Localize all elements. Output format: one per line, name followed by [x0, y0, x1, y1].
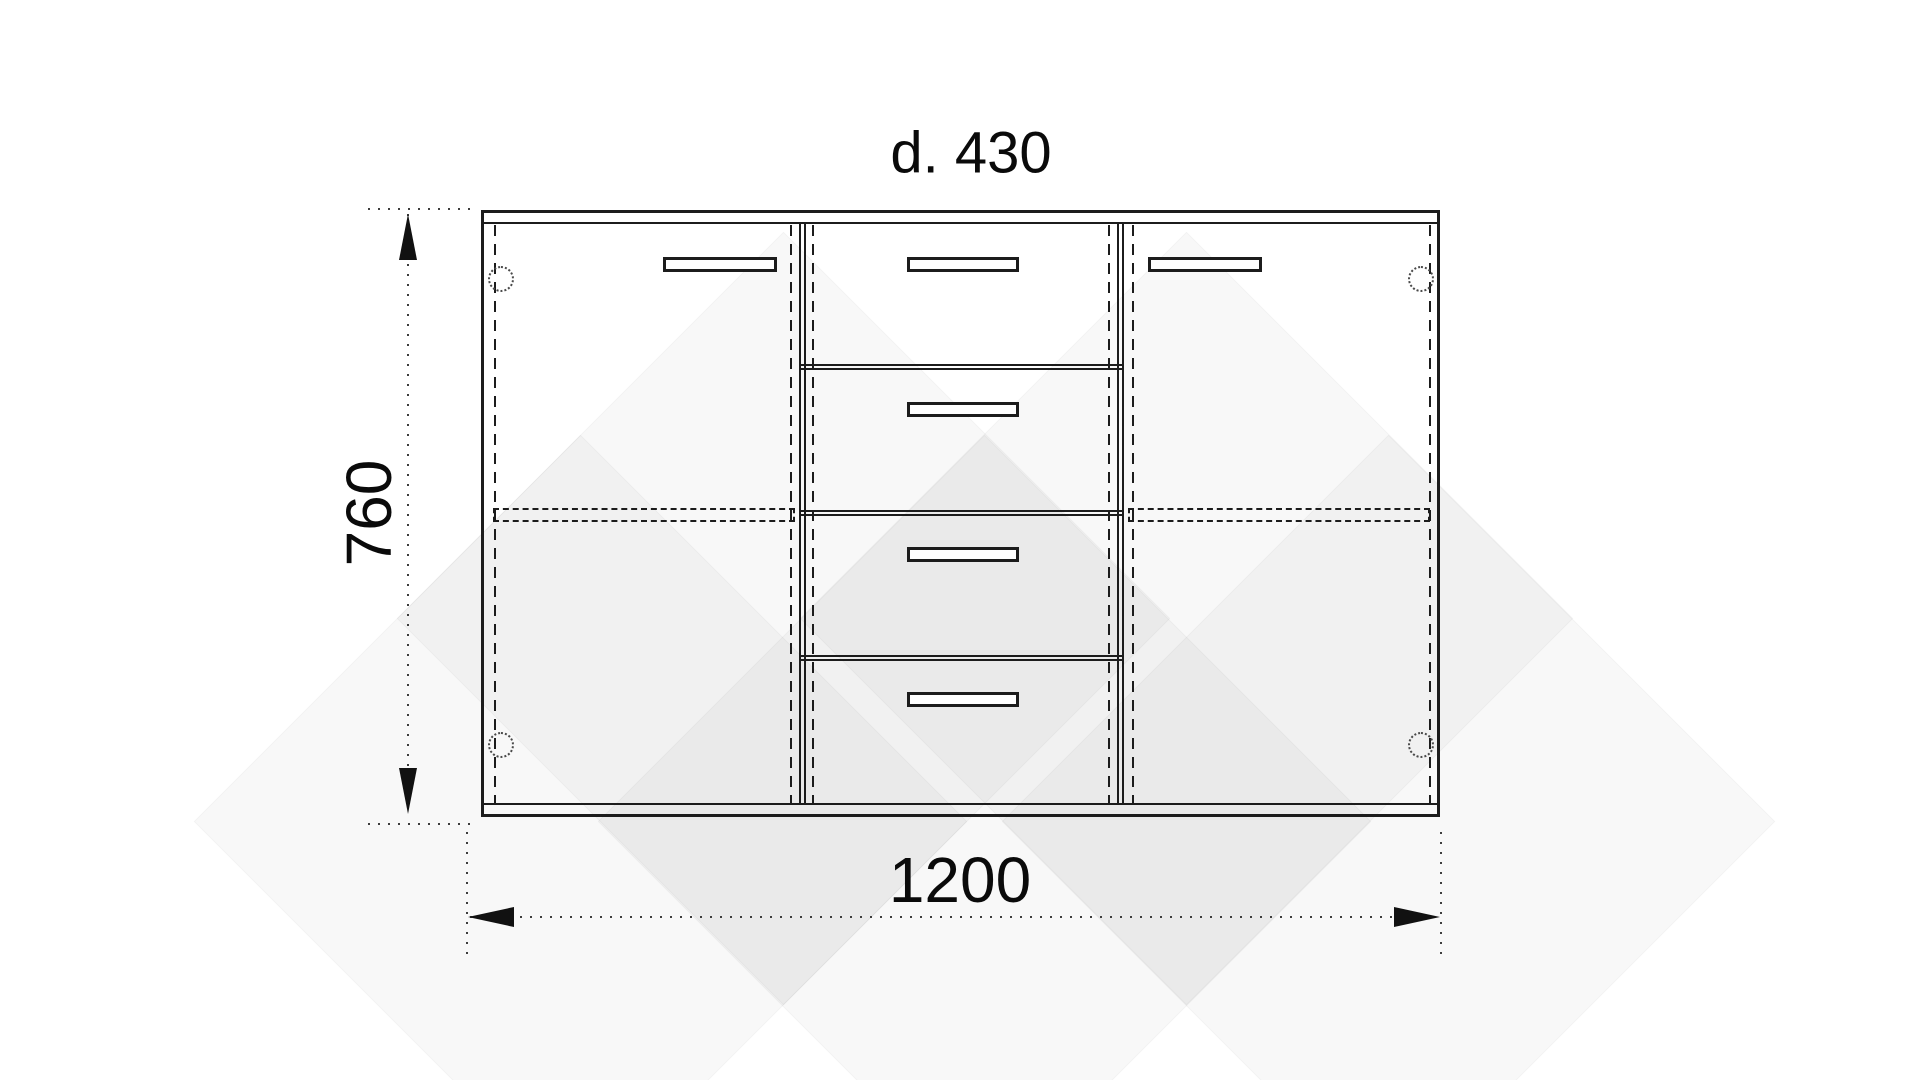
right-door-handle [1148, 257, 1262, 272]
height-dimension-line [407, 214, 409, 814]
drawer-1-handle [907, 257, 1019, 272]
depth-dimension-label: d. 430 [890, 120, 1051, 187]
width-extension-line-right [1440, 832, 1442, 954]
left-door-handle [663, 257, 777, 272]
width-extension-line-left [466, 832, 468, 956]
hinge-bottom-right [1408, 732, 1434, 758]
drawer-2-handle [907, 402, 1019, 417]
bottom-panel-edge [484, 803, 1437, 805]
width-dimension-value: 1200 [889, 843, 1031, 917]
height-arrowhead-bottom [399, 768, 417, 814]
left-door-shelf-hidden [493, 508, 795, 522]
hinge-top-left [488, 266, 514, 292]
height-arrowhead-top [399, 214, 417, 260]
height-extension-line-bottom [368, 823, 478, 825]
drawer-4-handle [907, 692, 1019, 707]
height-extension-line-top [368, 208, 478, 210]
hinge-top-right [1408, 266, 1434, 292]
top-panel-edge [484, 222, 1437, 224]
width-arrowhead-left [468, 907, 514, 927]
drawer-separator-2 [799, 510, 1124, 516]
drawer-separator-3 [799, 655, 1124, 661]
cabinet-outline [481, 210, 1440, 817]
drawer-3-handle [907, 547, 1019, 562]
technical-drawing-canvas: d. 430 [0, 0, 1920, 1080]
right-door-shelf-hidden [1128, 508, 1430, 522]
width-arrowhead-right [1394, 907, 1440, 927]
hinge-bottom-left [488, 732, 514, 758]
drawer-separator-1 [799, 364, 1124, 370]
height-dimension-value: 760 [332, 460, 406, 567]
